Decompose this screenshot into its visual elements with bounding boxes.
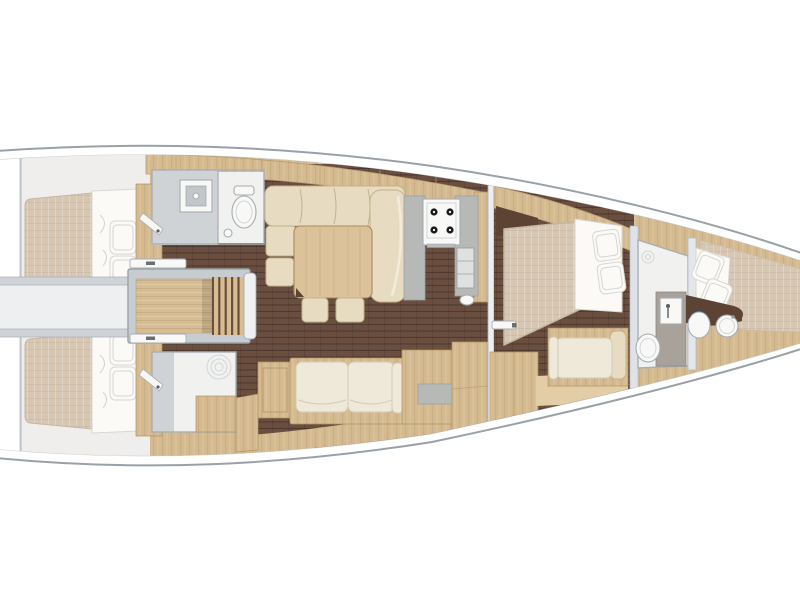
vanity-cabinet	[196, 396, 236, 432]
companionway-ramp	[136, 279, 212, 333]
sink-drain	[460, 295, 474, 305]
yacht-floor-plan	[0, 0, 800, 600]
sofa-arm	[549, 337, 558, 379]
stool	[336, 298, 364, 322]
sofa-seat	[556, 338, 612, 378]
corridor-wall-bottom	[0, 329, 130, 337]
stove-handle	[427, 244, 455, 248]
aft-heads-port	[139, 170, 264, 245]
mixer-knob	[666, 304, 670, 308]
galley-counter-left	[404, 196, 425, 300]
door-handle	[512, 323, 517, 328]
shower-room-gray	[152, 352, 174, 432]
ramp-shading	[202, 279, 212, 333]
chart-table	[418, 384, 452, 404]
floor-plan-canvas	[0, 0, 800, 600]
aft-shower-starboard	[139, 352, 236, 432]
shower-head-icon	[193, 193, 199, 199]
cabin-door-port	[130, 259, 186, 268]
toilet	[688, 312, 710, 338]
toilet-tank	[234, 186, 254, 195]
faucet	[731, 315, 735, 319]
floor-drain	[224, 229, 232, 237]
corridor-wall-top	[0, 277, 130, 285]
double-bed-mattress	[25, 193, 92, 289]
heads-wall-left	[630, 226, 638, 406]
door-handle	[156, 229, 159, 232]
seat-cushion	[266, 258, 294, 286]
corner-seat-cushion	[266, 226, 296, 256]
galley-shelves	[457, 248, 474, 288]
door-handle	[146, 262, 155, 266]
stool	[302, 298, 328, 322]
cabin-door-starboard	[130, 334, 186, 343]
double-bed-mattress	[25, 333, 92, 429]
corridor-floor	[0, 284, 130, 330]
door-handle	[156, 385, 159, 388]
shower-mixer-panel	[660, 298, 682, 324]
nav-seat-block	[452, 342, 488, 434]
step-cap	[244, 273, 256, 339]
door-handle	[146, 337, 155, 341]
side-shelf	[236, 394, 258, 452]
aft-cabin-starboard	[22, 328, 162, 456]
interior	[0, 138, 800, 478]
